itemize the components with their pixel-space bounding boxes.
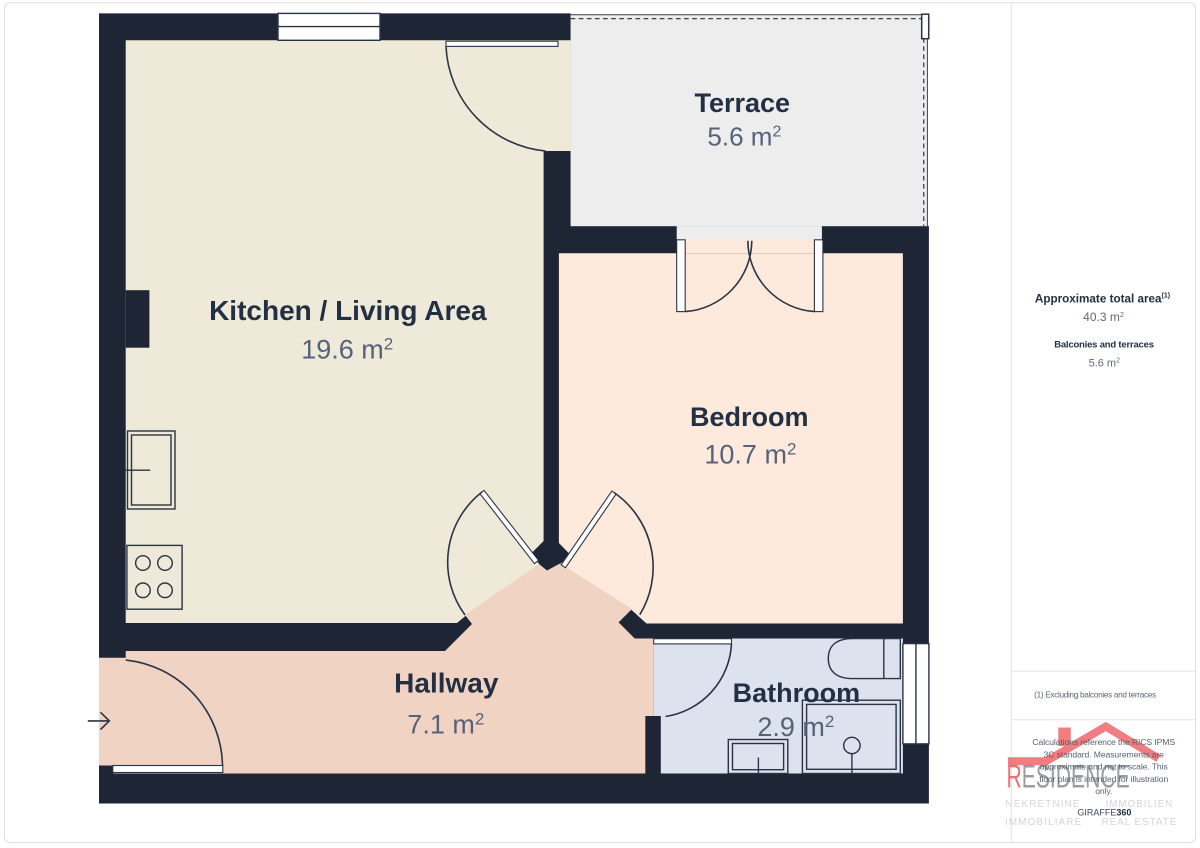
svg-text:REAL ESTATE: REAL ESTATE xyxy=(1102,817,1178,828)
svg-text:2.9 m2: 2.9 m2 xyxy=(757,712,834,742)
svg-text:(1) Excluding balconies and te: (1) Excluding balconies and terraces xyxy=(1034,690,1156,699)
svg-text:3C standard. Measurements are: 3C standard. Measurements are xyxy=(1044,749,1165,759)
svg-text:Bathroom: Bathroom xyxy=(733,678,861,708)
svg-text:40.3 m2: 40.3 m2 xyxy=(1083,310,1124,324)
svg-text:Approximate total area(1): Approximate total area(1) xyxy=(1035,293,1170,306)
svg-text:approximate and not to scale.: approximate and not to scale. This xyxy=(1040,762,1168,772)
svg-text:Calculations reference the RIC: Calculations reference the RICS IPMS xyxy=(1032,737,1175,747)
svg-text:Kitchen / Living Area: Kitchen / Living Area xyxy=(209,295,487,326)
svg-text:5.6 m2: 5.6 m2 xyxy=(1089,358,1121,370)
svg-text:GIRAFFE360: GIRAFFE360 xyxy=(1077,808,1131,818)
svg-text:7.1 m2: 7.1 m2 xyxy=(407,709,484,739)
svg-text:NEKRETNINE: NEKRETNINE xyxy=(1006,799,1081,810)
svg-text:19.6 m2: 19.6 m2 xyxy=(301,335,393,365)
svg-text:Hallway: Hallway xyxy=(394,668,499,699)
svg-text:IMMOBILIARE: IMMOBILIARE xyxy=(1005,817,1082,828)
svg-text:Balconies and terraces: Balconies and terraces xyxy=(1054,340,1154,351)
svg-text:only.: only. xyxy=(1095,786,1112,796)
svg-text:10.7 m2: 10.7 m2 xyxy=(704,440,796,470)
svg-text:Terrace: Terrace xyxy=(695,88,791,118)
svg-text:floor plan is intended for ill: floor plan is intended for illustration xyxy=(1039,774,1168,784)
svg-text:5.6 m2: 5.6 m2 xyxy=(707,121,781,151)
svg-text:Bedroom: Bedroom xyxy=(690,402,809,432)
